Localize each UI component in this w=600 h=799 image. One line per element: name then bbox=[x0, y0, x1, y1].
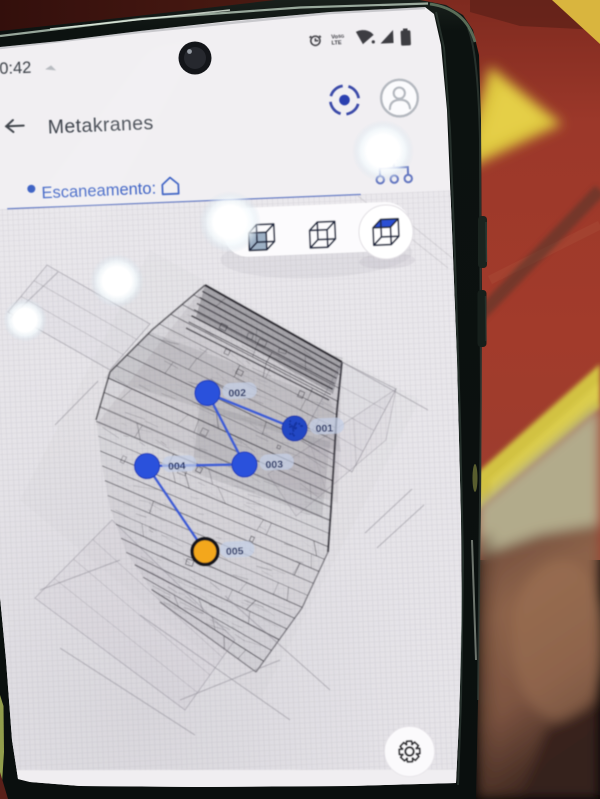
svg-text:0:42: 0:42 bbox=[0, 59, 32, 78]
svg-text:003: 003 bbox=[265, 458, 283, 471]
svg-text:001: 001 bbox=[315, 422, 333, 435]
svg-text:LTE: LTE bbox=[331, 40, 342, 46]
svg-text:004: 004 bbox=[168, 460, 186, 473]
svg-text:002: 002 bbox=[228, 387, 246, 400]
svg-text:005: 005 bbox=[226, 545, 244, 558]
svg-text:5G: 5G bbox=[338, 34, 345, 39]
